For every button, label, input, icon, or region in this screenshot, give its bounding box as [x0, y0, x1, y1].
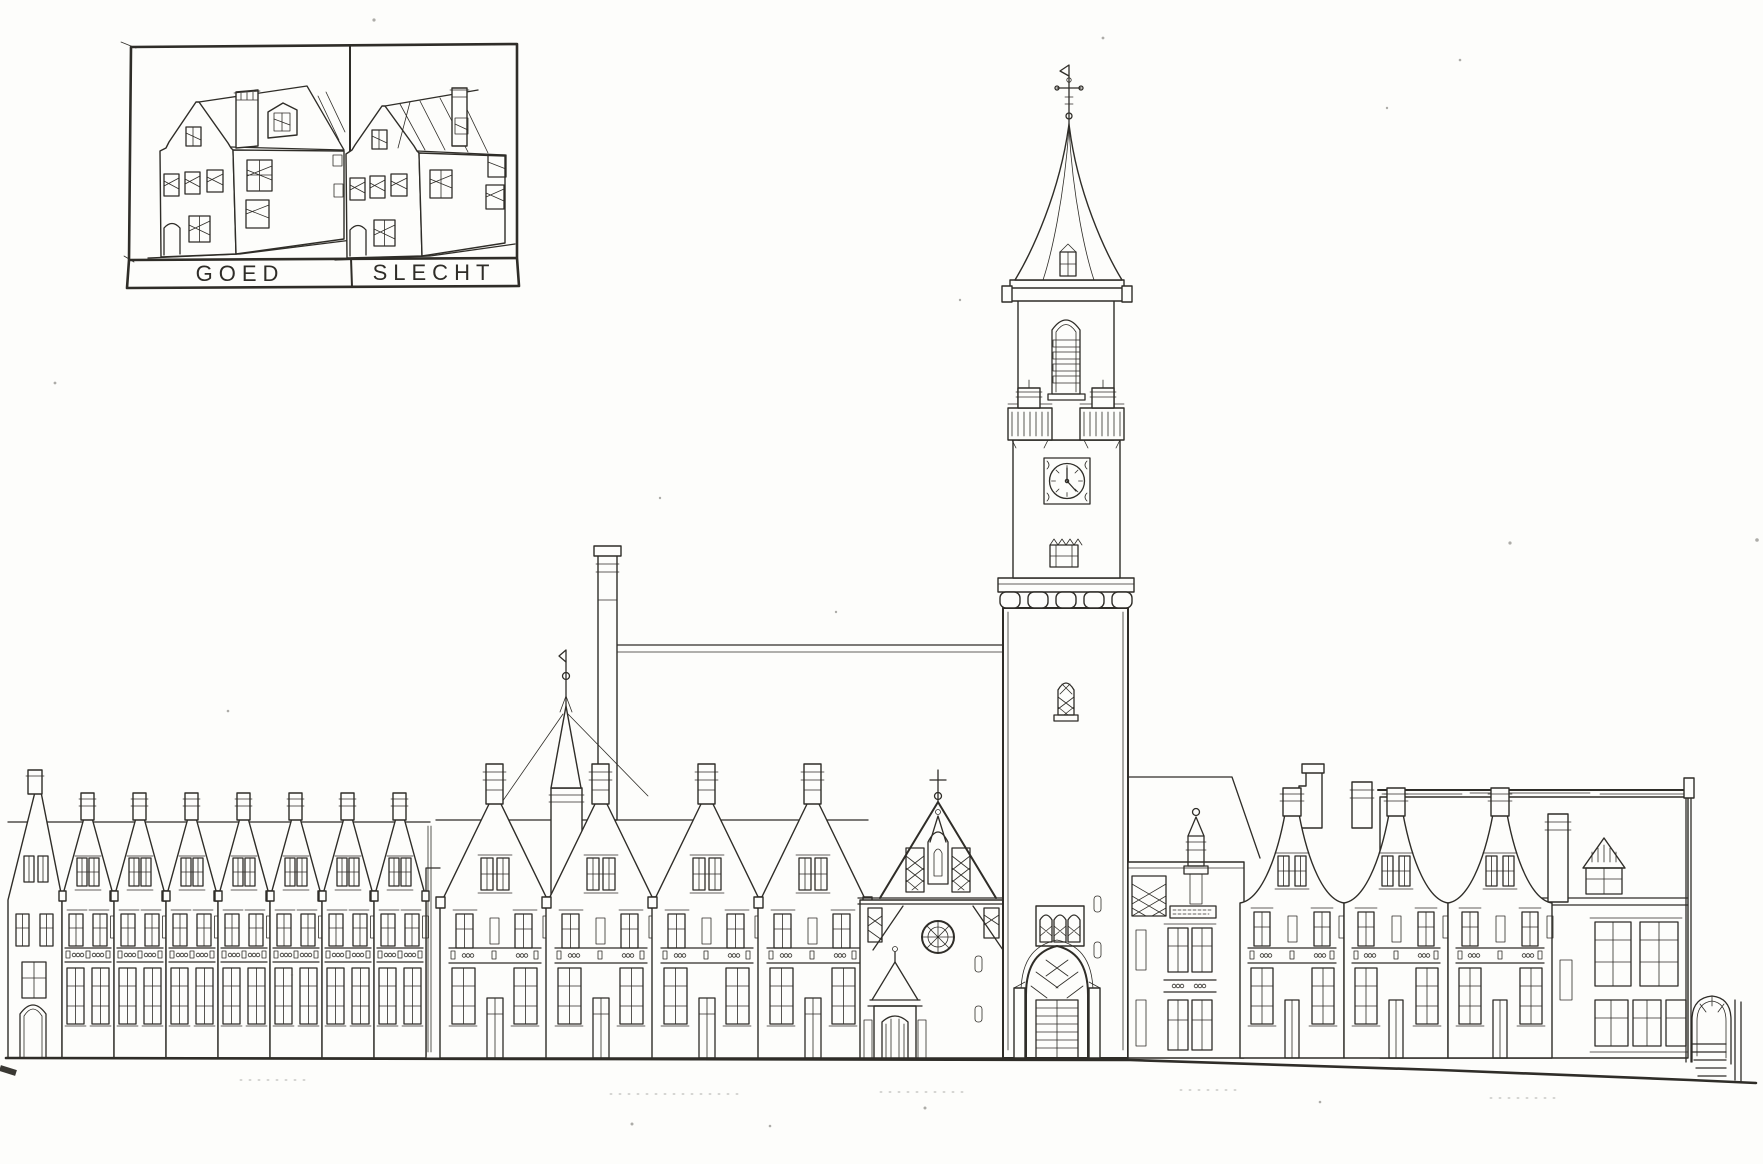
- gabled-house: [111, 793, 169, 1058]
- middle-terrace: [436, 764, 872, 1058]
- tower-triple-window: [1036, 906, 1084, 946]
- good-house-sketch: [148, 86, 352, 258]
- good-house-dormer: [268, 103, 297, 138]
- inset-label-bad: SLECHT: [373, 260, 496, 285]
- comparison-inset: GOED SLECHT: [121, 42, 519, 288]
- gabled-house: [648, 764, 766, 1058]
- bad-house-sketch: [335, 88, 515, 260]
- drawing-canvas: GOED SLECHT: [0, 0, 1763, 1164]
- ogee-gabled-house: [1240, 788, 1345, 1058]
- bell-niche: [928, 810, 948, 885]
- battlement-band: [998, 578, 1134, 608]
- bad-house-chimney: [450, 88, 469, 146]
- gabled-house: [267, 793, 325, 1058]
- front-chimney: [1545, 814, 1571, 902]
- right-terrace: [1128, 764, 1741, 1082]
- good-house-chimney: [234, 90, 260, 148]
- gabled-house: [754, 764, 872, 1058]
- church-tower: [998, 65, 1134, 1058]
- rose-window: [922, 921, 954, 953]
- gabled-house: [436, 764, 554, 1058]
- drainpipe: [428, 826, 431, 1052]
- gabled-house: [319, 793, 377, 1058]
- church-gable-porch: [858, 770, 1005, 1058]
- gabled-house: [163, 793, 221, 1058]
- clock-stage: [1013, 440, 1120, 578]
- spire: [1015, 65, 1122, 280]
- gabled-house: [215, 793, 273, 1058]
- gable-cross-finial: [930, 770, 946, 802]
- inset-label-good: GOED: [196, 261, 285, 286]
- arched-stair-gate: [1692, 996, 1741, 1082]
- ink-smudge: [0, 1068, 16, 1073]
- tower-cornice: [1002, 280, 1132, 302]
- ground: [0, 1058, 1756, 1127]
- gabled-house: [371, 793, 429, 1058]
- left-end-house: [8, 770, 62, 1058]
- left-terrace: [8, 770, 429, 1058]
- diaper-panels: [906, 848, 970, 892]
- weathervane-cross: [1055, 65, 1083, 124]
- banded-chimney: [1350, 782, 1374, 828]
- gabled-house: [59, 793, 117, 1058]
- elevation-drawing: GOED SLECHT: [0, 0, 1763, 1164]
